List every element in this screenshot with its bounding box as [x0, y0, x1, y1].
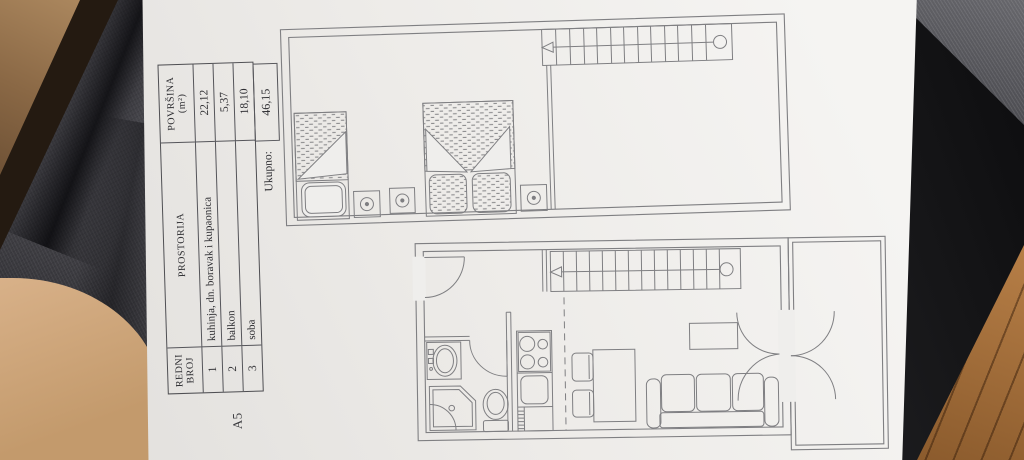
- dining-set: [572, 349, 636, 422]
- balcony: [788, 236, 888, 449]
- header-line: POVRŠINA: [165, 77, 178, 131]
- nightstand: [354, 191, 381, 218]
- toilet: [483, 389, 509, 431]
- room-divider-dashed: [564, 297, 566, 430]
- area-table-grid: REDNI BROJ PROSTORIJA POVRŠINA (m²) 1 ku…: [157, 62, 263, 395]
- apartment-label: A5: [229, 412, 246, 429]
- bathroom-door: [470, 340, 508, 377]
- total-value: 46,15: [252, 63, 279, 142]
- total-label: Ukupno:: [255, 141, 286, 347]
- area-table: REDNI BROJ PROSTORIJA POVRŠINA (m²) 1 ku…: [157, 61, 287, 395]
- entry-opening: [412, 257, 426, 301]
- spacer: [261, 346, 287, 392]
- bedroom-walls: [280, 14, 790, 226]
- ground-floor-plan: [411, 230, 892, 460]
- staircase: [542, 24, 733, 66]
- upper-floor-plan: [278, 12, 792, 228]
- dining-chair: [572, 390, 593, 417]
- row-area: 5,37: [212, 63, 234, 142]
- header-redni-broj: REDNI BROJ: [167, 347, 202, 393]
- staircase: [542, 247, 741, 292]
- header-line: (m²): [176, 93, 188, 113]
- entry-door: [424, 257, 465, 298]
- single-bed: [294, 112, 349, 221]
- kitchen-counter: [517, 331, 554, 432]
- coffee-table: [689, 323, 737, 350]
- header-povrsina: POVRŠINA (m²): [158, 65, 194, 144]
- row-area: 22,12: [192, 64, 214, 143]
- partition-wall: [547, 65, 556, 209]
- row-number: 2: [221, 346, 242, 392]
- header-line: PROSTORIJA: [175, 213, 188, 278]
- dining-chair: [572, 353, 593, 381]
- photo-of-floor-plan-document: REDNI BROJ PROSTORIJA POVRŠINA (m²) 1 ku…: [0, 0, 1024, 460]
- shower: [429, 386, 476, 431]
- kitchen-sink: [521, 376, 548, 404]
- nightstand: [389, 188, 415, 214]
- bathroom-sink: [427, 342, 462, 380]
- document-content: REDNI BROJ PROSTORIJA POVRŠINA (m²) 1 ku…: [0, 0, 1024, 460]
- sofa: [646, 373, 779, 428]
- nightstand: [520, 184, 547, 211]
- row-number: 3: [241, 345, 262, 391]
- dining-table: [593, 349, 636, 422]
- row-area: 18,10: [232, 63, 254, 142]
- row-number: 1: [201, 347, 222, 393]
- header-line: BROJ: [185, 357, 197, 384]
- double-bed: [423, 100, 517, 216]
